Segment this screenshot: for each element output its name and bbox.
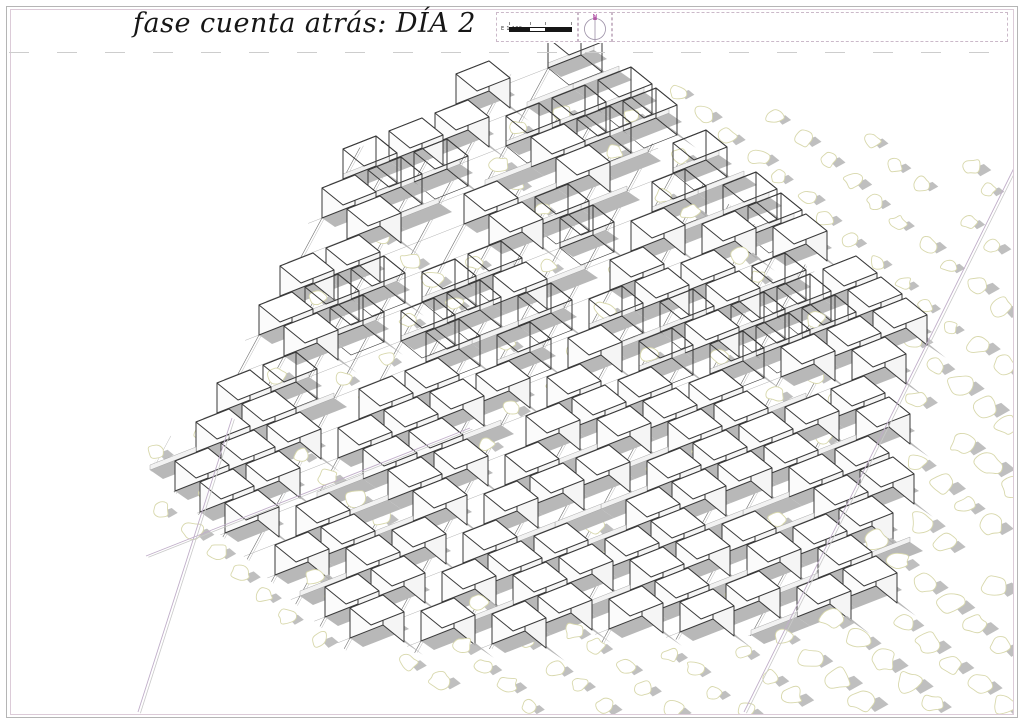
scale-bar: E 1:100: [496, 12, 578, 42]
sheet: fase cuenta atrás: DÍA 2 E 1:100 N: [0, 0, 1024, 724]
scale-bar-segment: [530, 27, 545, 32]
scale-tick: [571, 22, 572, 25]
scale-tick: [545, 22, 546, 25]
title-block-empty: [612, 12, 1008, 42]
scale-tick: [530, 22, 531, 25]
scale-bar-segment: [509, 27, 530, 32]
north-indicator: N: [578, 12, 612, 42]
scale-bar-segments: [509, 27, 572, 32]
north-arrow-icon: [579, 14, 611, 42]
scale-tick: [509, 22, 510, 25]
top-dashed-line: [9, 52, 1015, 53]
page-title: fase cuenta atrás: DÍA 2: [133, 8, 476, 39]
scale-bar-segment: [545, 27, 572, 32]
site-drawing: [0, 0, 1024, 724]
